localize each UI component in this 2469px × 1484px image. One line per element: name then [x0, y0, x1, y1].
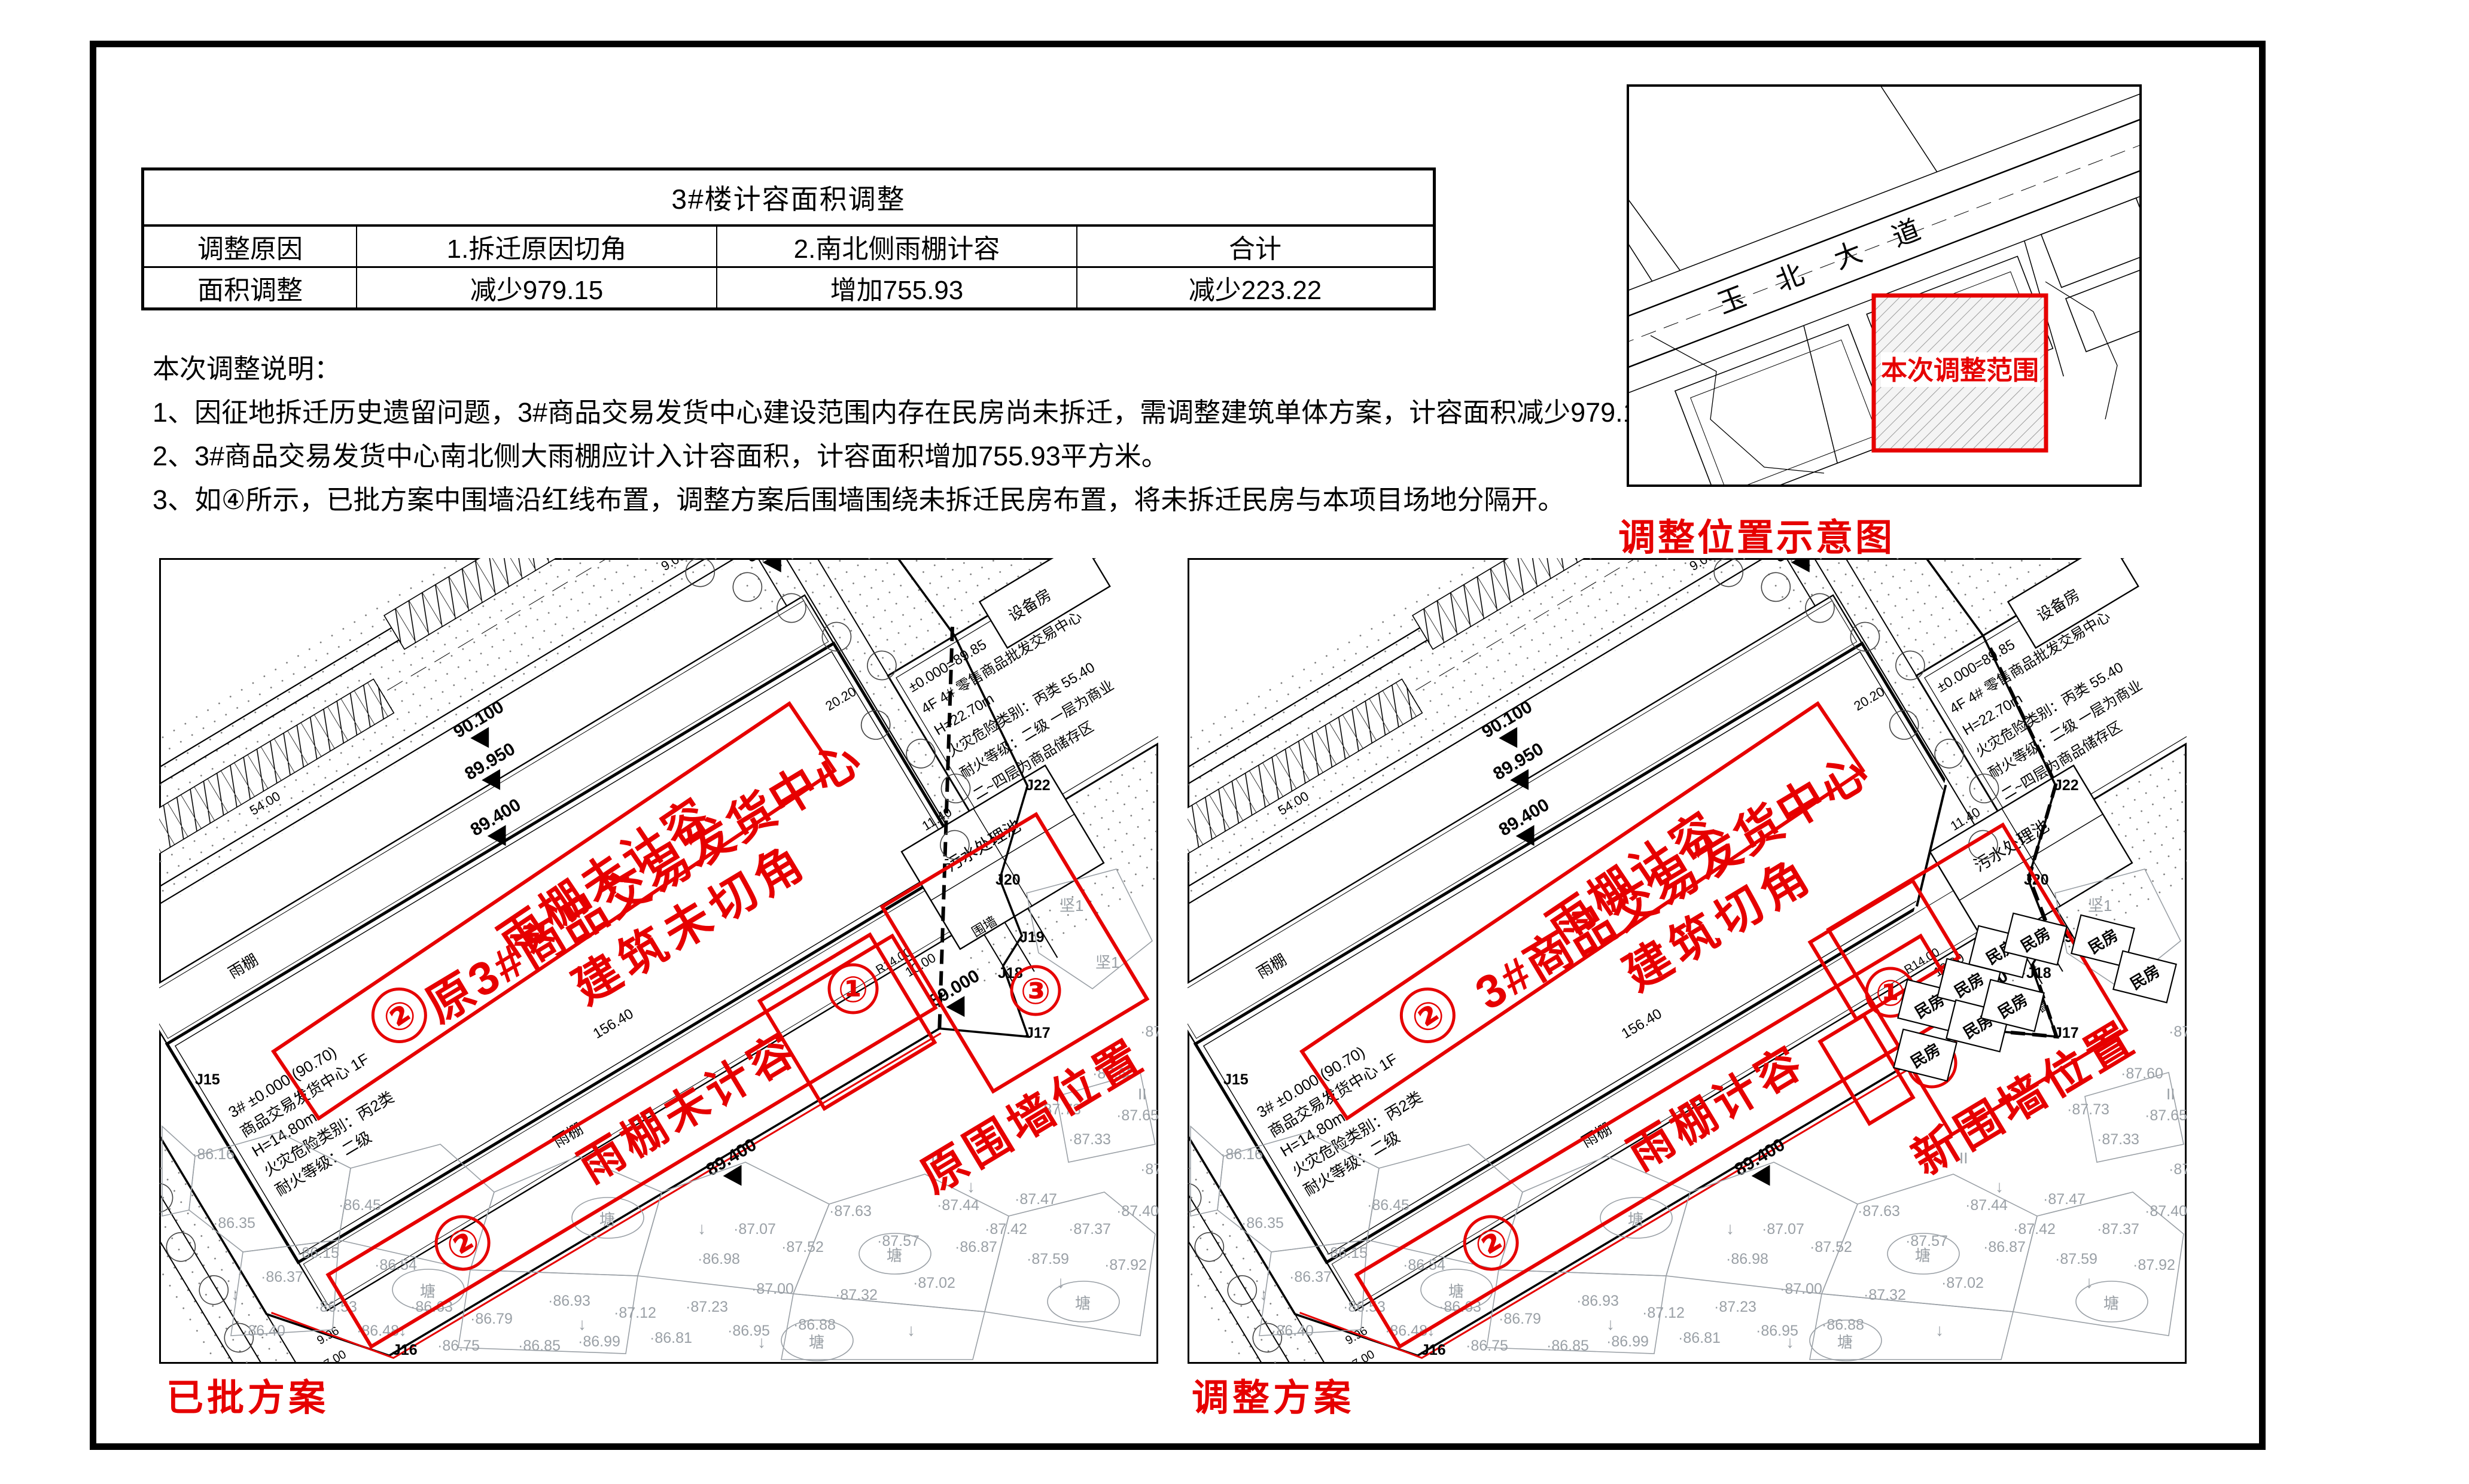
table-row-reason: 调整原因 1.拆迁原因切角 2.南北侧雨棚计容 合计 [144, 227, 1433, 268]
site-plan-adjusted: 雨棚雨棚3# ±0.000 (90.70)商品交易发货中心 1FH=14.80m… [1188, 558, 2187, 1364]
cell-reason-total: 合计 [1077, 227, 1433, 266]
spot-elevation: ·87.42 [985, 1221, 1027, 1238]
spot-elevation: ·87.87 [2169, 1023, 2187, 1040]
spot-elevation: ·86.87 [955, 1239, 997, 1256]
spot-elevation: ·86.85 [1546, 1337, 1589, 1354]
pond-label: 塘 [1075, 1294, 1091, 1312]
spot-elevation: ·86.81 [650, 1330, 692, 1346]
spot-elevation: ·87.12 [614, 1305, 656, 1321]
spot-elevation: ·86.87 [1983, 1239, 2026, 1256]
notes-heading: 本次调整说明： [153, 347, 1720, 391]
j-point: J22 [2054, 777, 2079, 794]
spot-elevation: ·87.33 [1068, 1131, 1111, 1148]
caption-adjusted-plan: 调整方案 [1192, 1367, 1354, 1421]
table-row-area: 面积调整 减少979.15 增加755.93 减少223.22 [144, 268, 1433, 307]
spot-elevation: ·87.12 [1642, 1305, 1685, 1321]
spot-elevation: ·86.85 [518, 1337, 561, 1354]
spot-elevation: ·86.15 [1325, 1245, 1368, 1261]
pond-label: 塘 [420, 1282, 436, 1300]
ground-label: 坚1 [2088, 897, 2112, 915]
spot-elevation: ·87.65 [2145, 1107, 2187, 1124]
spot-elevation: ·86.75 [437, 1337, 480, 1354]
spot-elevation: ·87.43 [1140, 1161, 1158, 1178]
spot-elevation: ·86.88 [793, 1317, 836, 1333]
pond-label: 塘 [1837, 1333, 1853, 1351]
j-point: J19 [1019, 929, 1045, 946]
adjustment-table: 3#楼计容面积调整 调整原因 1.拆迁原因切角 2.南北侧雨棚计容 合计 面积调… [141, 167, 1436, 310]
spot-elevation: ·87.57 [1905, 1233, 1948, 1250]
spot-elevation: ·86.93 [548, 1293, 590, 1309]
pond-label: 塘 [1628, 1211, 1643, 1229]
spot-elevation: ·86.37 [261, 1269, 303, 1285]
spot-elevation: ·87.57 [877, 1233, 920, 1250]
cell-reason-1: 1.拆迁原因切角 [357, 227, 717, 266]
flow-arrow: ↓ [1935, 1321, 1944, 1339]
spot-elevation: ·86.35 [1241, 1215, 1284, 1232]
map-caption: 调整位置示意图 [1618, 507, 1895, 561]
j-point: J17 [1025, 1025, 1051, 1041]
pond-label: 塘 [1448, 1282, 1464, 1300]
location-map: 玉北大道本次调整范围 [1627, 84, 2142, 487]
note-item-3: 3、如④所示，已批方案中围墙沿红线布置，调整方案后围墙围绕未拆迁民房布置，将未拆… [153, 478, 1720, 522]
spot-elevation: ·87.07 [733, 1221, 776, 1238]
ground-label: 坚1 [1095, 953, 1119, 971]
spot-elevation: ·87.87 [1140, 1023, 1158, 1040]
spot-elevation: ·87.40 [1116, 1203, 1158, 1220]
flow-arrow: ↓ [231, 1285, 239, 1303]
roman-label: II [2166, 1085, 2175, 1103]
spot-elevation: ·87.02 [1941, 1275, 1984, 1291]
spot-elevation: ·86.98 [1726, 1251, 1768, 1267]
flow-arrow: ↓ [1606, 1315, 1615, 1333]
spot-elevation: ·86.16 [192, 1146, 235, 1163]
spot-elevation: ·86.16 [1220, 1146, 1263, 1163]
spot-elevation: ·87.60 [2121, 1065, 2163, 1082]
cell-reason-2: 2.南北侧雨棚计容 [717, 227, 1077, 266]
note-item-2: 2、3#商品交易发货中心南北侧大雨棚应计入计容面积，计容面积增加755.93平方… [153, 434, 1720, 478]
spot-elevation: ·87.42 [2013, 1221, 2056, 1238]
flow-arrow: ↓ [1057, 1273, 1065, 1291]
spot-elevation: ·87.23 [686, 1299, 728, 1315]
note-item-1: 1、因征地拆迁历史遗留问题，3#商品交易发货中心建设范围内存在民房尚未拆迁，需调… [153, 391, 1720, 434]
flow-arrow: ↓ [698, 1219, 706, 1238]
cell-area-total: 减少223.22 [1077, 268, 1433, 307]
spot-elevation: ·87.00 [751, 1281, 794, 1297]
spot-elevation: ·86.81 [1678, 1330, 1721, 1346]
spot-elevation: ·86.93 [1576, 1293, 1619, 1309]
spot-elevation: ·86.99 [1606, 1333, 1649, 1350]
spot-elevation: ·87.44 [1965, 1197, 2008, 1214]
spot-elevation: ·86.79 [1499, 1311, 1541, 1327]
cell-area-label: 面积调整 [144, 268, 357, 307]
spot-elevation: ·87.52 [1810, 1239, 1852, 1256]
table-title: 3#楼计容面积调整 [144, 170, 1433, 227]
adjustment-notes: 本次调整说明： 1、因征地拆迁历史遗留问题，3#商品交易发货中心建设范围内存在民… [153, 347, 1720, 522]
spot-elevation: ·86.45 [1367, 1197, 1409, 1214]
flow-arrow: ↓ [1259, 1285, 1268, 1303]
spot-elevation: ·87.73 [2067, 1101, 2109, 1118]
flow-arrow: ↓ [1995, 1177, 2004, 1196]
pond-label: 塘 [599, 1211, 615, 1229]
j-point: J15 [1223, 1071, 1249, 1088]
spot-elevation: ·87.02 [913, 1275, 955, 1291]
flow-arrow: ↓ [757, 1333, 766, 1351]
spot-elevation: ·87.52 [781, 1239, 824, 1256]
spot-elevation: ·87.32 [1864, 1287, 1906, 1303]
spot-elevation: ·87.40 [2145, 1203, 2187, 1220]
spot-elevation: ·86.79 [470, 1311, 513, 1327]
spot-elevation: ·86.75 [1466, 1337, 1508, 1354]
spot-elevation: ·86.45 [339, 1197, 381, 1214]
j-point: J16 [392, 1342, 418, 1358]
spot-elevation: ·87.59 [1027, 1251, 1069, 1267]
spot-elevation: ·86.15 [297, 1245, 339, 1261]
caption-approved-plan: 已批方案 [166, 1367, 329, 1421]
flow-arrow: ↓ [1726, 1219, 1734, 1238]
spot-elevation: ·86.99 [578, 1333, 620, 1350]
map-scope-label: 本次调整范围 [1881, 356, 2039, 385]
cell-reason-label: 调整原因 [144, 227, 357, 266]
spot-elevation: ·87.37 [2097, 1221, 2139, 1238]
cell-area-2: 增加755.93 [717, 268, 1077, 307]
red-circle-num: ① [838, 970, 869, 1010]
ground-label: 坚1 [1060, 897, 1083, 915]
flow-arrow: ↓ [2085, 1273, 2093, 1291]
spot-elevation: ·87.37 [1068, 1221, 1111, 1238]
spot-elevation: ·87.00 [1780, 1281, 1822, 1297]
spot-elevation: ·86.37 [1289, 1269, 1332, 1285]
site-plan-approved: 雨棚雨棚3# ±0.000 (90.70)商品交易发货中心 1FH=14.80m… [159, 558, 1158, 1364]
spot-elevation: ·87.47 [2043, 1191, 2086, 1208]
spot-elevation: ·86.54 [1403, 1257, 1445, 1273]
cell-area-1: 减少979.15 [357, 268, 717, 307]
j-point: J20 [995, 871, 1021, 888]
pond-label: 塘 [809, 1333, 824, 1351]
j-point: J22 [1025, 777, 1051, 794]
spot-elevation: ·86.98 [698, 1251, 740, 1267]
spot-elevation: ·87.92 [1104, 1257, 1147, 1273]
spot-elevation: ·87.23 [1714, 1299, 1756, 1315]
spot-elevation: ·87.43 [2169, 1161, 2187, 1178]
pond-label: 塘 [2103, 1294, 2119, 1312]
spot-elevation: ·87.59 [2055, 1251, 2097, 1267]
sheet-page: 3#楼计容面积调整 调整原因 1.拆迁原因切角 2.南北侧雨棚计容 合计 面积调… [0, 0, 2469, 1484]
spot-elevation: ·87.92 [2133, 1257, 2175, 1273]
flow-arrow: ↓ [1786, 1333, 1794, 1351]
flow-arrow: ↓ [578, 1315, 586, 1333]
spot-elevation: ·87.63 [829, 1203, 872, 1220]
spot-elevation: ·86.35 [213, 1215, 255, 1232]
spot-elevation: ·87.47 [1015, 1191, 1057, 1208]
red-circle-num: ③ [1021, 971, 1051, 1011]
spot-elevation: ·86.40 [1271, 1323, 1314, 1339]
spot-elevation: ·87.07 [1762, 1221, 1804, 1238]
spot-elevation: ·87.32 [835, 1287, 878, 1303]
j-point: J18 [2026, 965, 2051, 982]
spot-elevation: ·86.54 [375, 1257, 417, 1273]
spot-elevation: ·87.63 [1858, 1203, 1900, 1220]
spot-elevation: ·86.88 [1822, 1317, 1864, 1333]
j-point: J16 [1421, 1342, 1446, 1358]
spot-elevation: ·87.65 [1116, 1107, 1158, 1124]
spot-elevation: ·87.33 [2097, 1131, 2139, 1148]
spot-elevation: ·86.40 [243, 1323, 285, 1339]
roman-label: II [1138, 1085, 1146, 1103]
flow-arrow: ↓ [907, 1321, 915, 1339]
j-point: J15 [195, 1071, 220, 1088]
